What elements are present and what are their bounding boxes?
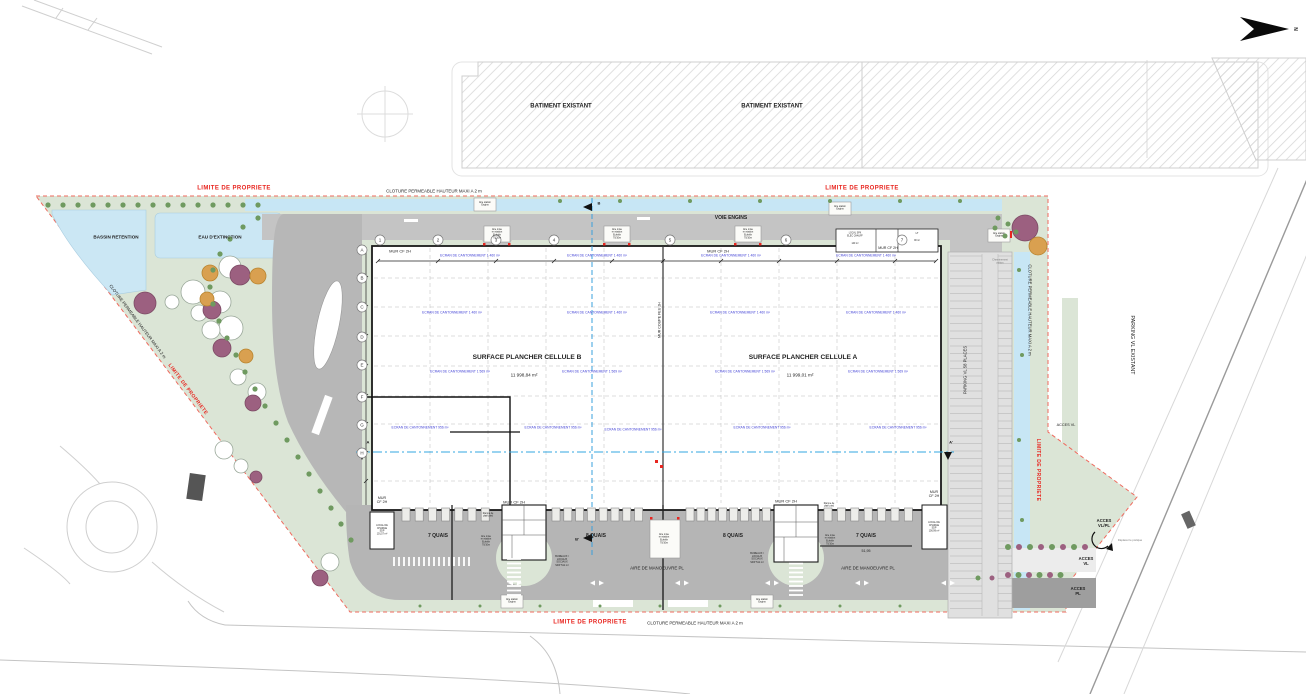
dock-door xyxy=(635,508,643,521)
tree-icon xyxy=(245,395,261,411)
site-plan-canvas: ABCDEFGH1234567 BATIMENT EXISTANTBATIMEN… xyxy=(0,0,1306,694)
shrub-dot-icon xyxy=(1020,353,1024,357)
roadside-structure xyxy=(1181,511,1196,529)
dock-door xyxy=(904,508,912,521)
dock-door xyxy=(402,508,410,521)
shrub-dot-icon xyxy=(558,199,562,203)
shrub-dot-icon xyxy=(105,202,110,207)
dock-door xyxy=(824,508,832,521)
tree-icon xyxy=(321,553,339,571)
grid-axis-circle: 4 xyxy=(549,235,559,245)
dock-door xyxy=(442,508,450,521)
dock-door xyxy=(599,508,607,521)
shrub-dot-icon xyxy=(419,605,422,608)
shrub-dot-icon xyxy=(217,251,222,256)
shrub-dot-icon xyxy=(207,284,212,289)
dock-door xyxy=(623,508,631,521)
grid-axis-circle: 5 xyxy=(665,235,675,245)
shrub-dot-icon xyxy=(255,215,260,220)
tree-icon xyxy=(1029,237,1047,255)
shrub-dot-icon xyxy=(195,202,200,207)
grid-axis-circle: C xyxy=(357,302,367,312)
shrub-dot-icon xyxy=(227,236,232,241)
shrub-dot-icon xyxy=(1016,544,1022,550)
shrub-dot-icon xyxy=(1071,544,1077,550)
existing-buildings xyxy=(452,58,1306,176)
tree-icon xyxy=(202,265,218,281)
grid-axis-circle: 6 xyxy=(781,235,791,245)
shrub-dot-icon xyxy=(993,226,998,231)
tree-icon xyxy=(134,292,156,314)
ladder-niche xyxy=(650,520,680,558)
dock-door xyxy=(741,508,749,521)
shrub-dot-icon xyxy=(165,202,170,207)
shrub-dot-icon xyxy=(150,202,155,207)
shrub-dot-icon xyxy=(317,488,322,493)
tree-icon xyxy=(165,295,179,309)
shrub-dot-icon xyxy=(338,521,343,526)
tree-icon xyxy=(202,321,220,339)
shrub-dot-icon xyxy=(599,605,602,608)
tree-icon xyxy=(312,570,328,586)
shrub-dot-icon xyxy=(262,403,267,408)
shrub-dot-icon xyxy=(839,605,842,608)
grid-axis-label: E xyxy=(360,363,363,368)
shrub-dot-icon xyxy=(60,202,65,207)
grid-axis-label: H xyxy=(360,451,363,456)
shrub-dot-icon xyxy=(719,605,722,608)
shrub-dot-icon xyxy=(1017,268,1021,272)
tree-icon xyxy=(239,349,253,363)
shrub-dot-icon xyxy=(976,576,981,581)
shrub-dot-icon xyxy=(1049,544,1055,550)
shrub-dot-icon xyxy=(224,335,229,340)
dock-door xyxy=(481,508,489,521)
shrub-dot-icon xyxy=(828,199,832,203)
shrub-dot-icon xyxy=(1038,544,1044,550)
shrub-dot-icon xyxy=(1026,572,1032,578)
shrub-dot-icon xyxy=(618,199,622,203)
shrub-dot-icon xyxy=(255,202,260,207)
shrub-dot-icon xyxy=(306,471,311,476)
shrub-dot-icon xyxy=(1058,572,1064,578)
shrub-dot-icon xyxy=(240,202,245,207)
grid-axis-circle: B xyxy=(357,273,367,283)
shrub-dot-icon xyxy=(1003,234,1008,239)
shrub-dot-icon xyxy=(1047,572,1053,578)
swale-top xyxy=(245,199,1002,211)
shrub-dot-icon xyxy=(295,454,300,459)
technical-rooms xyxy=(836,229,938,252)
dock-door xyxy=(611,508,619,521)
dock-door xyxy=(576,508,584,521)
dock-door xyxy=(697,508,705,521)
shrub-dot-icon xyxy=(1006,222,1011,227)
tree-icon xyxy=(230,265,250,285)
shrub-dot-icon xyxy=(210,267,215,272)
shrub-dot-icon xyxy=(990,576,995,581)
dock-door xyxy=(686,508,694,521)
shrub-dot-icon xyxy=(1016,572,1022,578)
dock-door xyxy=(455,508,463,521)
shrub-dot-icon xyxy=(225,202,230,207)
grid-axis-circle: 2 xyxy=(433,235,443,245)
shrub-dot-icon xyxy=(1060,544,1066,550)
grid-axis-circle: D xyxy=(357,332,367,342)
dock-door xyxy=(719,508,727,521)
shrub-dot-icon xyxy=(1037,572,1043,578)
shrub-dot-icon xyxy=(328,505,333,510)
shrub-dot-icon xyxy=(899,605,902,608)
dock-door xyxy=(851,508,859,521)
shrub-dot-icon xyxy=(75,202,80,207)
dock-door xyxy=(587,508,595,521)
shrub-dot-icon xyxy=(779,605,782,608)
shrub-dot-icon xyxy=(45,202,50,207)
shrub-dot-icon xyxy=(1005,572,1011,578)
shrub-dot-icon xyxy=(233,352,238,357)
small-existing-building xyxy=(186,473,205,501)
access-road-vl xyxy=(1004,548,1096,572)
dock-door xyxy=(878,508,886,521)
dock-door xyxy=(864,508,872,521)
shrub-dot-icon xyxy=(135,202,140,207)
shrub-dot-icon xyxy=(90,202,95,207)
shrub-dot-icon xyxy=(996,216,1001,221)
dock-door xyxy=(708,508,716,521)
north-arrow-icon xyxy=(1240,17,1289,41)
shrub-dot-icon xyxy=(240,224,245,229)
tree-icon xyxy=(215,441,233,459)
grid-axis-circle: 1 xyxy=(375,235,385,245)
local-charge-a xyxy=(922,505,947,549)
dock-door xyxy=(415,508,423,521)
tree-icon xyxy=(250,268,266,284)
shrub-dot-icon xyxy=(758,199,762,203)
dock-door xyxy=(428,508,436,521)
dock-door xyxy=(891,508,899,521)
shrub-dot-icon xyxy=(252,386,257,391)
local-charge-b xyxy=(370,512,394,549)
shrub-dot-icon xyxy=(479,605,482,608)
parking-vl-lot xyxy=(948,252,1012,618)
shrub-dot-icon xyxy=(958,199,962,203)
grid-axis-label: F xyxy=(361,395,364,400)
tree-icon xyxy=(219,316,243,340)
shrub-dot-icon xyxy=(284,437,289,442)
shrub-dot-icon xyxy=(348,537,353,542)
dock-door xyxy=(837,508,845,521)
shrub-dot-icon xyxy=(242,369,247,374)
shrub-dot-icon xyxy=(1017,438,1021,442)
grid-axis-circle: 3 xyxy=(491,235,501,245)
dock-door xyxy=(564,508,572,521)
shrub-dot-icon xyxy=(659,605,662,608)
shrub-dot-icon xyxy=(1014,230,1019,235)
grid-axis-label: G xyxy=(360,423,364,428)
shrub-dot-icon xyxy=(1020,518,1024,522)
grid-axis-circle: A xyxy=(357,245,367,255)
tree-icon xyxy=(234,459,248,473)
shrub-dot-icon xyxy=(120,202,125,207)
dock-door xyxy=(468,508,476,521)
dock-door xyxy=(552,508,560,521)
access-road-pl xyxy=(1004,578,1096,608)
grid-axis-circle: 7 xyxy=(897,235,907,245)
shrub-dot-icon xyxy=(539,605,542,608)
dock-door xyxy=(762,508,770,521)
tree-icon xyxy=(213,339,231,357)
shrub-dot-icon xyxy=(1005,544,1011,550)
dock-door xyxy=(730,508,738,521)
tree-icon xyxy=(1012,215,1038,241)
shrub-dot-icon xyxy=(210,202,215,207)
grid-axis-label: A xyxy=(360,248,363,253)
dock-door xyxy=(751,508,759,521)
site-plan-svg: ABCDEFGH1234567 xyxy=(0,0,1306,694)
shrub-dot-icon xyxy=(273,420,278,425)
shrub-dot-icon xyxy=(216,318,221,323)
existing-parking-green-strip xyxy=(1062,298,1078,452)
shrub-dot-icon xyxy=(180,202,185,207)
grid-axis-circle: E xyxy=(357,360,367,370)
grid-axis-circle: F xyxy=(357,392,367,402)
shrub-dot-icon xyxy=(898,199,902,203)
grid-axis-label: B xyxy=(360,276,363,281)
tree-icon xyxy=(250,471,262,483)
grid-axis-circle: H xyxy=(357,448,367,458)
shrub-dot-icon xyxy=(688,199,692,203)
shrub-dot-icon xyxy=(1082,544,1088,550)
shrub-dot-icon xyxy=(1027,544,1033,550)
shrub-dot-icon xyxy=(210,301,215,306)
grid-axis-circle: G xyxy=(357,420,367,430)
